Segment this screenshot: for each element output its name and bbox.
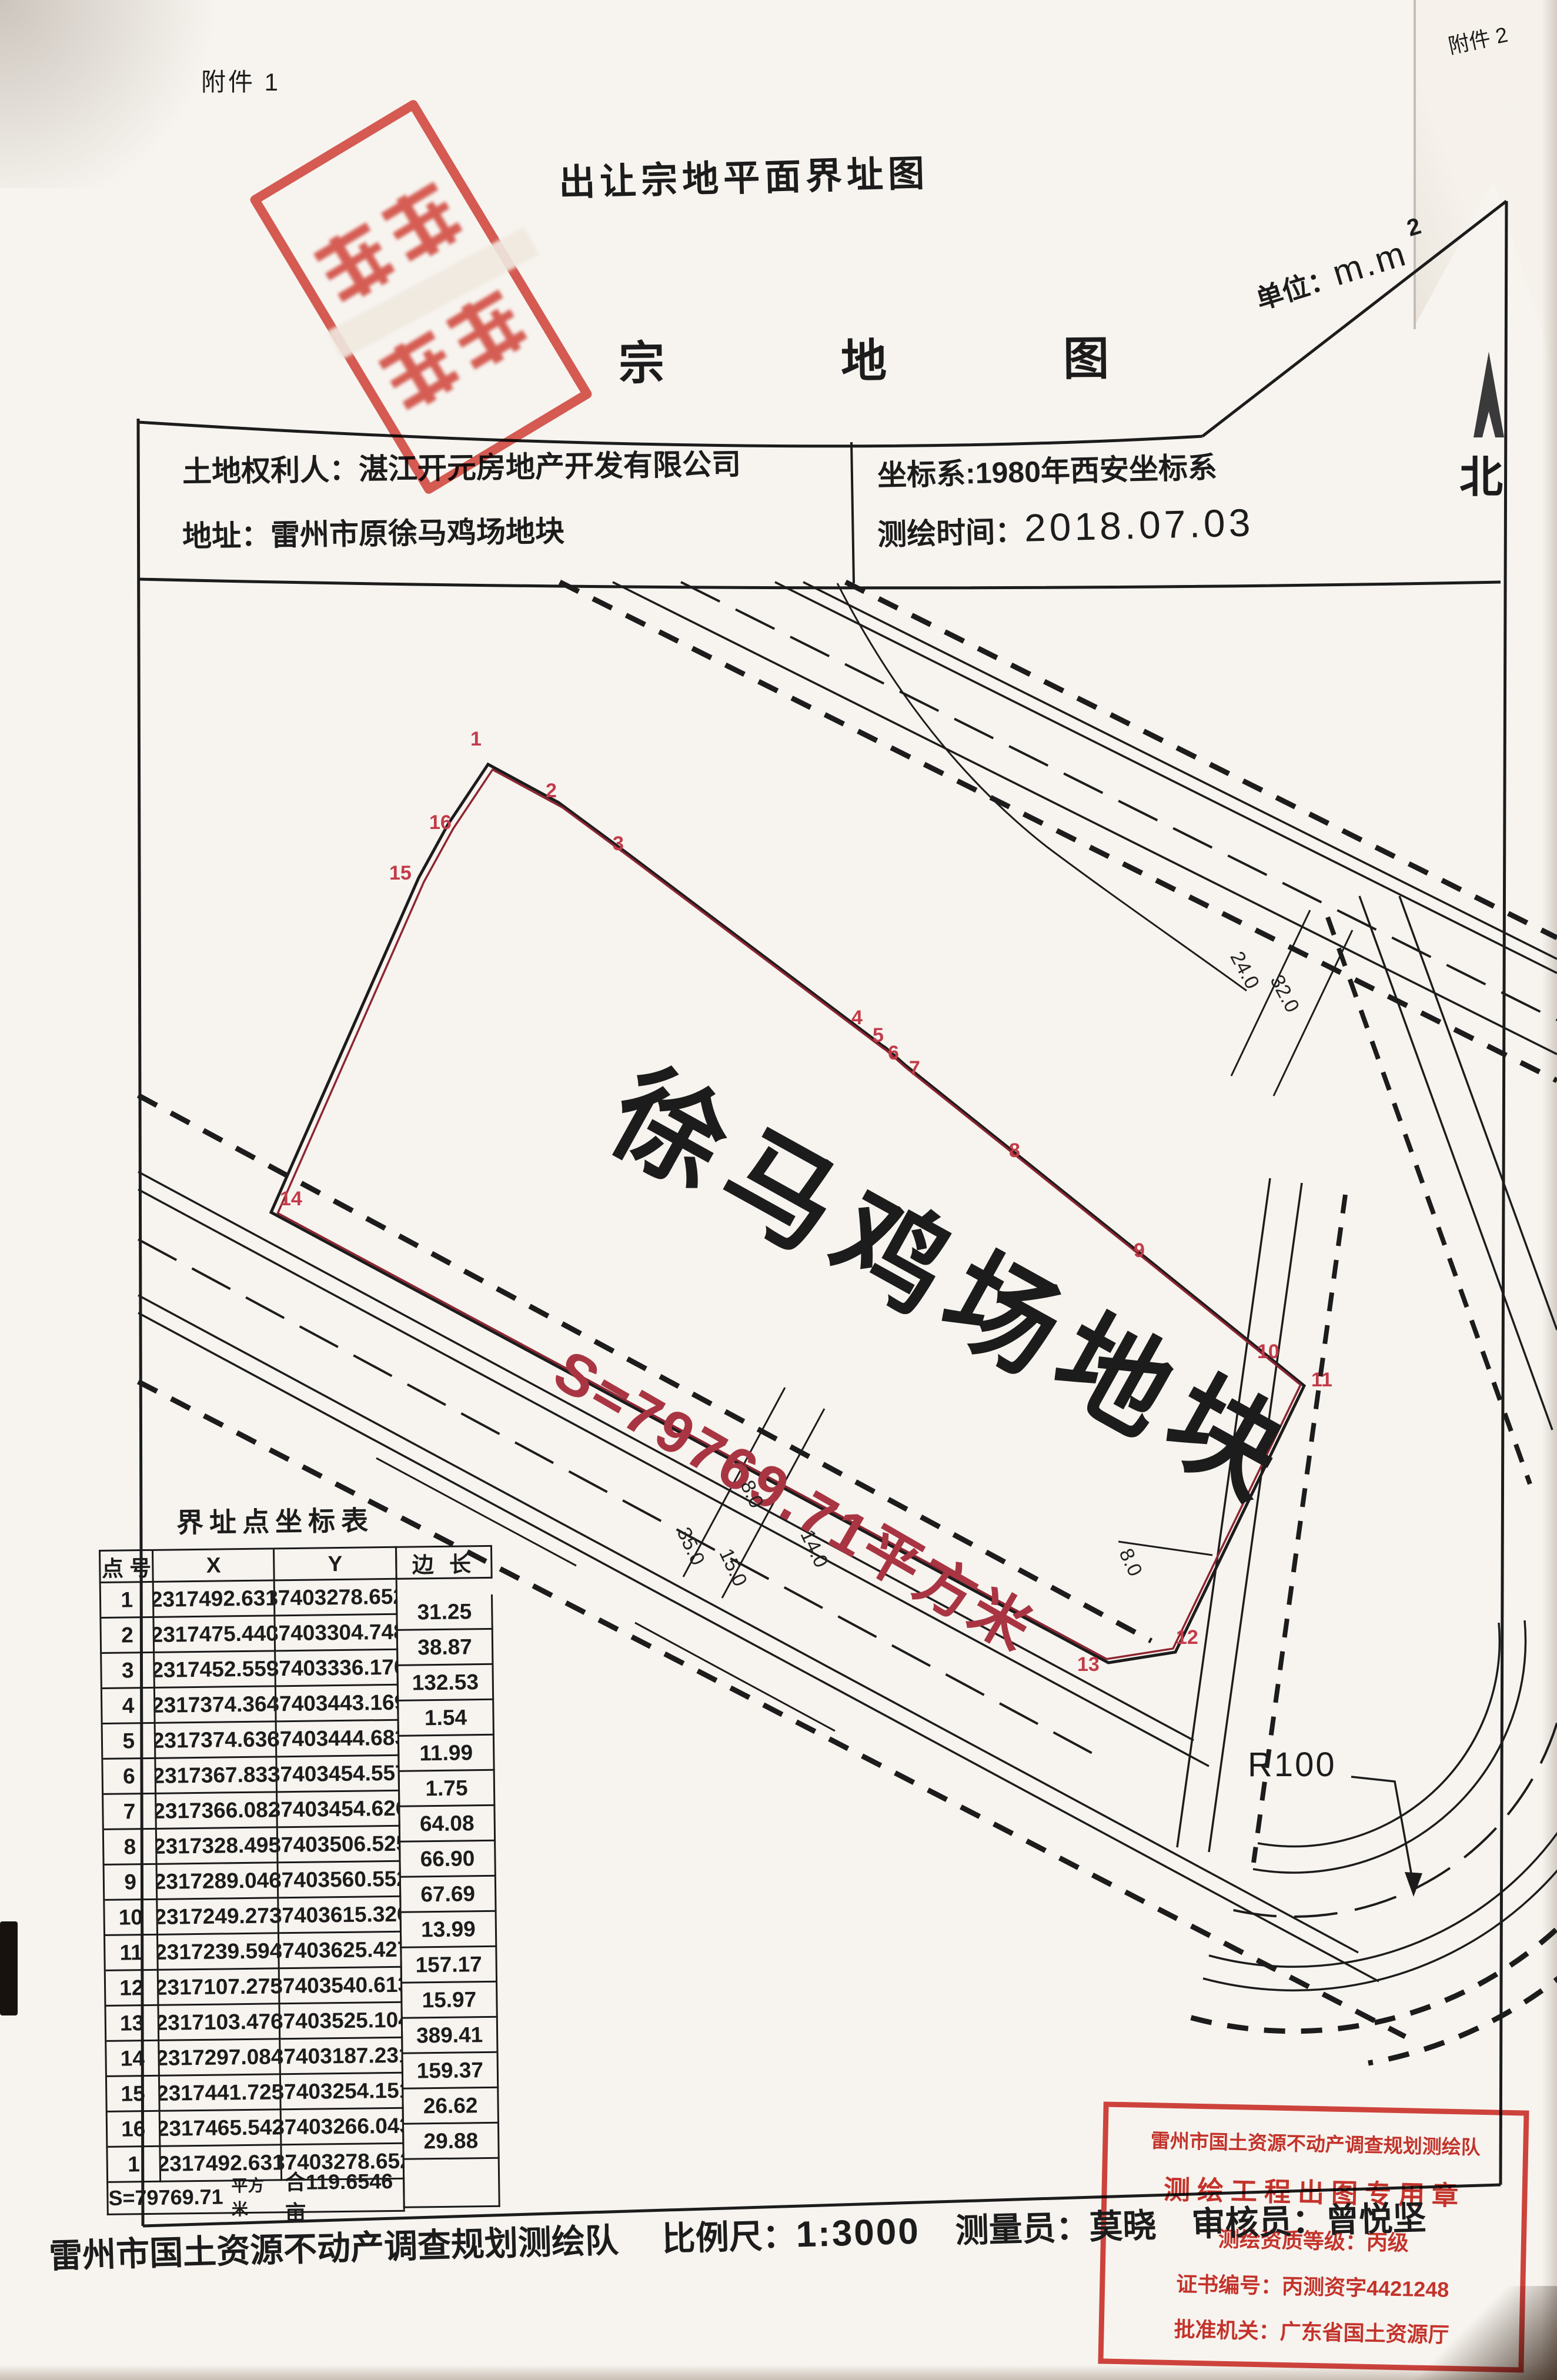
edge-length: 38.87 — [396, 1630, 494, 1666]
survey-date-line: 测绘时间：2018.07.03 — [877, 500, 1254, 554]
map-title-char-3: 图 — [1063, 333, 1110, 385]
cell-pt: 12 — [106, 1971, 159, 2007]
col-header-x: X — [153, 1549, 275, 1583]
cell-x: 2317297.084 — [160, 2040, 281, 2077]
seal-glyph — [376, 327, 463, 415]
edge-length: 1.75 — [398, 1771, 496, 1807]
seal-glyph — [379, 179, 466, 267]
seal-glyph — [444, 286, 530, 375]
edge-length: 67.69 — [399, 1877, 497, 1913]
edge-length: 15.97 — [400, 1983, 498, 2019]
cell-x: 2317103.476 — [159, 2004, 280, 2041]
cell-pt: 15 — [107, 2077, 161, 2112]
cell-y: 37403304.748 — [276, 1615, 398, 1652]
vertex-label-7: 7 — [909, 1057, 920, 1080]
cell-y: 37403187.231 — [280, 2038, 403, 2075]
cell-x: 2317465.542 — [161, 2110, 282, 2147]
scanned-parcel-map-sheet: 附件 1 附件 2 出让宗地平面界址图 宗地图 单位：m.m2 北 土地权利人：… — [0, 0, 1557, 2380]
vertex-label-16: 16 — [429, 811, 452, 834]
cell-x: 2317366.082 — [157, 1793, 278, 1830]
document-title: 出让宗地平面界址图 — [558, 143, 930, 206]
table-row: 142317297.08437403187.231 — [106, 2038, 403, 2077]
cell-pt: 3 — [102, 1653, 155, 1689]
cell-x: 2317249.273 — [158, 1898, 279, 1936]
address-line: 地址：雷州市原徐马鸡场地块 — [182, 507, 565, 555]
table-row: 152317441.72537403254.151 — [107, 2074, 404, 2112]
reviewer-label: 审核员： — [1191, 2194, 1326, 2245]
cell-y: 37403625.427 — [279, 1933, 402, 1970]
cell-y: 37403443.169 — [276, 1686, 399, 1723]
edge-length: 31.25 — [396, 1595, 493, 1631]
cell-pt: 6 — [103, 1759, 156, 1795]
cell-y: 37403266.043 — [282, 2109, 404, 2146]
address-value: 雷州市原徐马鸡场地块 — [270, 514, 565, 551]
cell-pt: 8 — [104, 1830, 158, 1866]
table-row: 132317103.47637403525.104 — [106, 2003, 403, 2042]
edge-length: 13.99 — [400, 1912, 497, 1948]
edge-length: 29.88 — [402, 2124, 500, 2160]
survey-date-value: 2018.07.03 — [1024, 500, 1254, 550]
vertex-label-3: 3 — [613, 833, 624, 855]
attachment-1-label: 附件 1 — [201, 62, 280, 98]
table-row: 32317452.55937403336.170 — [102, 1650, 399, 1689]
address-label: 地址： — [182, 519, 271, 553]
north-label: 北 — [1459, 442, 1503, 505]
edge-length: 132.53 — [396, 1665, 494, 1702]
cell-x: 2317289.046 — [158, 1863, 279, 1900]
map-sheet-title: 宗地图 — [618, 322, 1109, 393]
vertex-label-10: 10 — [1257, 1341, 1279, 1363]
survey-date-label: 测绘时间： — [877, 515, 1025, 551]
cell-pt: 14 — [106, 2041, 160, 2077]
table-row: 72317366.08237403454.626 — [103, 1791, 400, 1830]
cell-y: 37403525.104 — [280, 2003, 403, 2040]
vertex-label-2: 2 — [546, 780, 557, 803]
edge-length: 64.08 — [398, 1806, 496, 1843]
table-row: 62317367.83337403454.557 — [103, 1756, 400, 1795]
table-row: 122317107.27537403540.613 — [106, 1968, 403, 2007]
cell-y: 37403444.683 — [277, 1721, 399, 1758]
cell-pt: 7 — [103, 1794, 157, 1830]
cell-y: 37403540.613 — [280, 1968, 402, 2005]
col-header-length: 边 长 — [395, 1545, 493, 1580]
vertex-label-5: 5 — [873, 1024, 884, 1047]
vertex-label-14: 14 — [280, 1188, 302, 1211]
seal-line-5: 批准机关：广东省国土资源厅 — [1174, 2312, 1449, 2349]
table-row: 162317465.54237403266.043 — [108, 2109, 405, 2148]
table-row: 112317239.59437403625.427 — [105, 1933, 402, 1971]
cell-y: 37403254.151 — [281, 2074, 403, 2111]
edge-length: 1.54 — [397, 1700, 495, 1737]
header-bottom-line — [138, 579, 1501, 588]
vertex-label-12: 12 — [1176, 1626, 1198, 1649]
edge-length: 159.37 — [402, 2053, 499, 2090]
seal-line-1: 雷州市国土资源不动产调查规划测绘队 — [1150, 2125, 1481, 2160]
cell-pt: 1 — [101, 1583, 155, 1619]
cell-x: 2317374.364 — [155, 1687, 276, 1724]
vertex-label-4: 4 — [851, 1007, 863, 1029]
area-mu: 合119.6546亩 — [285, 2164, 403, 2227]
edge-length: 66.90 — [399, 1841, 496, 1878]
cell-pt: 11 — [105, 1936, 159, 1971]
edge-length-empty — [403, 2159, 500, 2208]
vertex-label-9: 9 — [1134, 1239, 1145, 1262]
cell-x: 2317492.631 — [154, 1581, 275, 1618]
cell-y: 37403615.326 — [279, 1897, 402, 1934]
crs-value: 1980年西安坐标系 — [975, 451, 1217, 490]
vertex-label-11: 11 — [1311, 1369, 1332, 1392]
table-row: 12317492.63137403278.652 — [101, 1580, 398, 1619]
coordinate-system-line: 坐标系:1980年西安坐标系 — [877, 444, 1217, 494]
cell-x: 2317452.559 — [155, 1652, 276, 1689]
cell-pt: 9 — [105, 1865, 158, 1901]
table-row: 82317328.49537403506.525 — [104, 1827, 401, 1866]
cell-y: 37403506.525 — [278, 1827, 400, 1864]
cell-pt: 5 — [103, 1724, 156, 1760]
edge-length: 157.17 — [400, 1947, 497, 1984]
table-row: 42317374.36437403443.169 — [102, 1686, 399, 1724]
area-sum: S=79769.71 — [108, 2184, 223, 2210]
cell-y: 37403560.552 — [279, 1862, 401, 1899]
r100-leader-line — [1351, 1777, 1414, 1886]
cell-pt: 1 — [108, 2147, 161, 2183]
vertex-label-1: 1 — [470, 728, 482, 751]
cell-x: 2317374.636 — [156, 1722, 277, 1759]
vertex-label-8: 8 — [1009, 1139, 1020, 1162]
edge-length: 389.41 — [401, 2018, 499, 2054]
vertex-label-6: 6 — [888, 1042, 899, 1065]
land-owner-label: 土地权利人： — [182, 453, 359, 488]
radius-label: R100 — [1248, 1745, 1337, 1784]
road-northeast — [560, 582, 1557, 1081]
edge-length: 11.99 — [397, 1736, 495, 1772]
cell-pt: 13 — [106, 2006, 159, 2042]
crs-label: 坐标系: — [877, 457, 975, 492]
scale-label: 比例尺： — [661, 2209, 797, 2261]
r100-leader-arrowhead — [1405, 1872, 1422, 1897]
cell-y: 37403336.170 — [276, 1650, 398, 1687]
table-row: 92317289.04637403560.552 — [105, 1862, 402, 1901]
area-unit: 平方米 — [231, 2172, 277, 2220]
cell-x: 2317441.725 — [160, 2075, 281, 2112]
table-row: 22317475.44037403304.748 — [101, 1615, 398, 1654]
seal-glyph — [312, 219, 398, 307]
surveyor-label: 测量员： — [954, 2201, 1090, 2252]
cell-y: 37403278.652 — [275, 1580, 397, 1617]
col-header-point: 点 号 — [101, 1551, 154, 1583]
coordinate-table-title: 界址点坐标表 — [176, 1499, 375, 1540]
col-header-y: Y — [275, 1548, 397, 1582]
cell-y: 37403454.626 — [278, 1791, 400, 1829]
cell-pt: 4 — [102, 1689, 156, 1724]
cell-pt: 10 — [105, 1900, 158, 1936]
cell-x: 2317107.275 — [159, 1969, 280, 2006]
edge-length: 26.62 — [402, 2088, 499, 2125]
table-row: 102317249.27337403615.326 — [105, 1897, 402, 1936]
reviewer-name: 曾悦坚 — [1325, 2191, 1426, 2242]
vertex-label-15: 15 — [389, 862, 412, 885]
scale-value: 1:3000 — [796, 2211, 921, 2256]
cell-x: 2317475.440 — [155, 1616, 276, 1653]
coordinate-table-main: 点 号 X Y 12317492.63137403278.652 2231747… — [99, 1546, 405, 2215]
cell-x: 2317367.833 — [156, 1757, 278, 1794]
cell-y: 37403454.557 — [278, 1756, 400, 1793]
coordinate-table: 点 号 X Y 12317492.63137403278.652 2231747… — [99, 1545, 502, 2213]
header-divider — [851, 442, 854, 583]
cell-pt: 2 — [101, 1618, 155, 1654]
map-title-char-2: 地 — [841, 335, 887, 387]
surveyor-name: 莫晓 — [1088, 2198, 1157, 2248]
cell-x: 2317239.594 — [158, 1934, 279, 1971]
frame-corner-diagonal — [1202, 201, 1506, 436]
map-title-char-1: 宗 — [619, 337, 665, 390]
table-footer-area: S=79769.71 平方米 合119.6546亩 — [108, 2180, 405, 2214]
table-row: 52317374.63637403444.683 — [103, 1721, 400, 1760]
cell-x: 2317328.495 — [157, 1828, 278, 1865]
seal-line-4: 证书编号：丙测资字4421248 — [1176, 2267, 1449, 2304]
vertex-label-13: 13 — [1077, 1653, 1100, 1676]
table-header-row: 点 号 X Y — [101, 1548, 397, 1583]
cell-pt: 16 — [108, 2112, 161, 2148]
